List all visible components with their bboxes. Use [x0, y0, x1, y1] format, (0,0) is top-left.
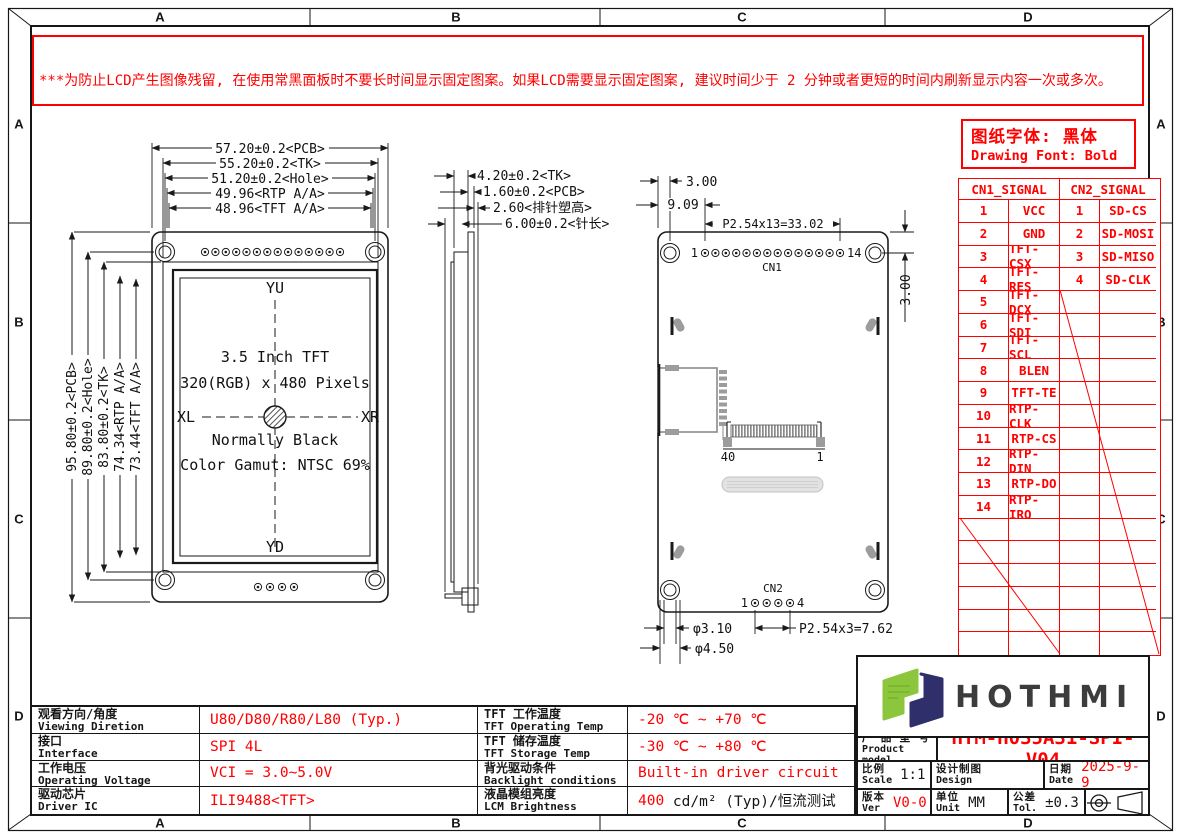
dim-cn1-pitch: P2.54x13=33.02: [722, 217, 823, 231]
table-cell: [1060, 405, 1100, 428]
spec-label-en: LCM Brightness: [478, 801, 627, 813]
table-cell: TFT-SDI: [1009, 314, 1060, 337]
zone-col-a-top: A: [155, 10, 164, 25]
table-cell: [1009, 564, 1060, 587]
scale-cell: 比例Scale 1:1: [858, 762, 932, 790]
table-cell: 3: [959, 246, 1009, 269]
side-connector: [462, 588, 478, 605]
product-model-label-en: Product model: [862, 744, 936, 763]
spec-label: TFT 储存温度TFT Storage Temp: [478, 734, 628, 761]
spec-label-cn: 液晶模组亮度: [478, 787, 627, 801]
spec-label-cn: TFT 工作温度: [478, 707, 627, 721]
title-block: HOTHMI 产 品 型 号Product model HTM-H035A31-…: [856, 655, 1150, 816]
table-cell: 2: [959, 223, 1009, 246]
table-cell: [1060, 632, 1100, 655]
table-cell: [1060, 291, 1100, 314]
table-cell: RTP-DO: [1009, 473, 1060, 496]
product-model-label: 产 品 型 号Product model: [858, 738, 938, 762]
tolerance-cell: 公差Tol. ±0.3: [1009, 790, 1086, 816]
back-pcb-outline: [658, 232, 888, 612]
back-view: 40 1: [636, 175, 914, 664]
spec-value: -20 ℃ ~ +70 ℃: [628, 707, 854, 734]
cn1-label: CN1: [762, 261, 782, 274]
dim-width-tk: 55.20±0.2<TK>: [219, 157, 321, 172]
dim-width-rtp: 49.96<RTP A/A>: [215, 187, 325, 202]
version-label-cn: 版本: [862, 792, 885, 803]
cn2-pin4-label: 4: [797, 596, 804, 610]
dim-height-hole: 89.80±0.2<Hole>: [81, 358, 96, 476]
table-cell: [1100, 587, 1156, 610]
brand-wordmark: HOTHMI: [955, 680, 1134, 715]
fpc-pin-1-label: 1: [816, 450, 823, 464]
back-mounting-holes: [661, 244, 885, 600]
zone-row-a-left: A: [14, 117, 23, 132]
spec-label-en: Viewing Diretion: [32, 721, 199, 733]
table-cell: RTP-IRQ: [1009, 496, 1060, 519]
dim-side-header-height: 2.60<排针塑高>: [493, 200, 592, 216]
table-cell: 2: [1060, 223, 1100, 246]
date-label-en: Date: [1049, 775, 1073, 786]
panel-mode-text: Normally Black: [212, 431, 338, 449]
drawing-font-note: 图纸字体: 黑体 Drawing Font: Bold: [961, 119, 1136, 169]
table-cell: [959, 541, 1009, 564]
spec-value: Built-in driver circuit: [628, 761, 854, 788]
table-cell: RTP-CS: [1009, 428, 1060, 451]
logo-box: HOTHMI: [858, 657, 1148, 738]
table-cell: 1: [1060, 200, 1100, 223]
zone-col-d-top: D: [1023, 10, 1032, 25]
front-cn2-pins: [254, 583, 297, 590]
spec-label-cn: 驱动芯片: [32, 787, 199, 801]
table-cell: 9: [959, 382, 1009, 405]
table-cell: [1100, 314, 1156, 337]
spec-label: 接口Interface: [32, 734, 200, 761]
spec-label: 液晶模组亮度LCM Brightness: [478, 787, 628, 814]
table-cell: 5: [959, 291, 1009, 314]
dim-top-to-pins: 3.00: [899, 274, 914, 305]
product-model-value: HTM-H035A31-SPI-V04: [938, 738, 1148, 762]
zone-row-a-right: A: [1156, 117, 1165, 132]
table-cell: [1100, 382, 1156, 405]
front-top-dims: 57.20±0.2<PCB> 55.20±0.2<TK> 51.20±0.2<H…: [152, 141, 388, 217]
cn1-pin14-label: 14: [847, 246, 861, 260]
table-cell: [1100, 519, 1156, 542]
table-cell: [1060, 473, 1100, 496]
dir-label-xl: XL: [177, 408, 195, 426]
corner-diagonal: [9, 814, 32, 830]
dim-hole-inner-dia: φ3.10: [693, 622, 732, 637]
side-dims: 4.20±0.2<TK> 1.60±0.2<PCB> 2.60<排针塑高> 6.…: [428, 169, 609, 232]
table-cell: 13: [959, 473, 1009, 496]
zone-col-b-bottom: B: [451, 816, 460, 831]
spec-value: -30 ℃ ~ +80 ℃: [628, 734, 854, 761]
dim-height-tk: 83.80±0.2<TK>: [97, 366, 112, 468]
panel-resolution-text: 320(RGB) x 480 Pixels: [180, 374, 370, 392]
date-label-cn: 日期: [1049, 764, 1073, 775]
spec-label-cn: 工作电压: [32, 761, 199, 775]
cn1-signal-header: CN1_SIGNAL: [959, 179, 1060, 200]
table-cell: 14: [959, 496, 1009, 519]
drawing-font-note-cn: 图纸字体: 黑体: [971, 123, 1134, 147]
product-model-label-cn: 产 品 型 号: [862, 738, 936, 744]
brightness-unit: cd/m² (Typ)/恒流测试: [664, 790, 836, 811]
table-cell: [1100, 405, 1156, 428]
table-cell: [1009, 587, 1060, 610]
side-tk-bar: [454, 252, 468, 592]
front-view: 57.20±0.2<PCB> 55.20±0.2<TK> 51.20±0.2<H…: [65, 141, 388, 602]
spec-label: 工作电压Operating Voltage: [32, 761, 200, 788]
dir-label-xr: XR: [361, 408, 380, 426]
spec-label-en: Backlight conditions: [478, 775, 627, 787]
design-label-en: Design: [936, 775, 982, 786]
table-cell: [1060, 610, 1100, 633]
table-cell: SD-MOSI: [1100, 223, 1156, 246]
spec-label-en: TFT Operating Temp: [478, 721, 627, 733]
drawing-font-note-en: Drawing Font: Bold: [971, 148, 1134, 164]
side-front-glass: [451, 262, 454, 582]
table-cell: [1100, 337, 1156, 360]
dim-height-tft: 73.44<TFT A/A>: [129, 362, 144, 472]
table-cell: [1009, 610, 1060, 633]
dim-side-pin-length: 6.00±0.2<针长>: [505, 217, 609, 232]
cn2-pin1-label: 1: [741, 596, 748, 610]
unit-value: MM: [968, 795, 985, 811]
table-cell: RTP-CLK: [1009, 405, 1060, 428]
table-cell: [1009, 541, 1060, 564]
sd-card-slot: [658, 364, 727, 440]
fpc-connector: 40 1: [721, 422, 825, 464]
table-cell: 7: [959, 337, 1009, 360]
zone-col-c-bottom: C: [737, 816, 746, 831]
table-cell: RTP-DIN: [1009, 450, 1060, 473]
table-cell: [959, 632, 1009, 655]
table-cell: 11: [959, 428, 1009, 451]
spec-label-en: Driver IC: [32, 801, 199, 813]
drawing-sheet: A B C D A B C D A B C D A B C D ***为防止LC…: [0, 0, 1181, 838]
spec-label: 观看方向/角度Viewing Diretion: [32, 707, 200, 734]
spec-label: TFT 工作温度TFT Operating Temp: [478, 707, 628, 734]
table-cell: [959, 519, 1009, 542]
version-cell: 版本Ver V0-0: [858, 790, 932, 816]
design-label-cn: 设计制图: [936, 764, 982, 775]
zone-row-d-right: D: [1156, 709, 1165, 724]
spec-label: 背光驱动条件Backlight conditions: [478, 761, 628, 788]
cn2-label: CN2: [763, 582, 783, 595]
table-cell: 3: [1060, 246, 1100, 269]
table-cell: [1060, 428, 1100, 451]
corner-diagonal: [1149, 814, 1172, 830]
dim-side-tk: 4.20±0.2<TK>: [477, 169, 571, 184]
table-cell: [1100, 541, 1156, 564]
unit-label-cn: 单位: [936, 792, 960, 803]
table-cell: [1060, 564, 1100, 587]
date-value: 2025-9-9: [1081, 762, 1148, 790]
dim-height-rtp: 74.34<RTP A/A>: [113, 362, 128, 472]
table-cell: 10: [959, 405, 1009, 428]
warning-line-1: ***为防止LCD产生图像残留, 在使用常黑面板时不要长时间显示固定图案。如果L…: [39, 73, 1142, 90]
table-cell: [1100, 291, 1156, 314]
table-cell: TFT-CSX: [1009, 246, 1060, 269]
table-cell: [1060, 496, 1100, 519]
dim-cn2-pitch: P2.54x3=7.62: [799, 622, 893, 637]
front-cn1-pins: [201, 248, 343, 255]
zone-row-c-left: C: [14, 512, 23, 527]
spec-label-en: Operating Voltage: [32, 775, 199, 787]
dim-width-tft: 48.96<TFT A/A>: [215, 202, 325, 217]
spec-label: 驱动芯片Driver IC: [32, 787, 200, 814]
signal-table: CN1_SIGNAL CN2_SIGNAL 1VCC1SD-CS 2GND2SD…: [958, 178, 1161, 656]
version-label-en: Ver: [862, 803, 885, 814]
projection-symbol-cell: [1086, 790, 1148, 816]
table-cell: [1100, 428, 1156, 451]
fpc-pin-40-label: 40: [721, 450, 735, 464]
mechanical-views: 57.20±0.2<PCB> 55.20±0.2<TK> 51.20±0.2<H…: [30, 110, 960, 702]
front-left-dims: 95.80±0.2<PCB> 89.80±0.2<Hole> 83.80±0.2…: [65, 232, 144, 602]
front-center-mark: [264, 406, 286, 428]
product-model-cell: HTM-H035A31-SPI-V04: [938, 738, 1148, 762]
cn1-pin1-label: 1: [691, 246, 698, 260]
spec-value: ILI9488<TFT>: [200, 787, 478, 814]
table-cell: [959, 587, 1009, 610]
table-cell: [1060, 359, 1100, 382]
spec-table: 观看方向/角度Viewing Diretion U80/D80/R80/L80 …: [30, 705, 856, 816]
side-extension-lines: [445, 170, 478, 592]
back-cn2-pins: [751, 599, 793, 606]
spec-value: VCI = 3.0~5.0V: [200, 761, 478, 788]
tolerance-value: ±0.3: [1045, 795, 1079, 811]
corner-diagonal: [9, 9, 32, 27]
dim-hole-outer-dia: φ4.50: [695, 642, 734, 657]
table-cell: [1100, 359, 1156, 382]
dim-edge-to-pin1: 9.09: [667, 198, 698, 213]
brightness-value: 400: [638, 793, 664, 809]
table-cell: 4: [959, 268, 1009, 291]
corner-diagonal: [1149, 9, 1172, 27]
table-cell: TFT-DCX: [1009, 291, 1060, 314]
zone-col-c-top: C: [737, 10, 746, 25]
zone-row-b-left: B: [14, 315, 23, 330]
table-cell: 1: [959, 200, 1009, 223]
panel-gamut-text: Color Gamut: NTSC 69%: [180, 456, 370, 474]
spec-label-en: TFT Storage Temp: [478, 748, 627, 760]
table-cell: [1009, 632, 1060, 655]
side-pin: [445, 594, 462, 598]
zone-row-d-left: D: [14, 709, 23, 724]
tolerance-label-cn: 公差: [1013, 792, 1037, 803]
spec-value: SPI 4L: [200, 734, 478, 761]
date-cell: 日期Date 2025-9-9: [1045, 762, 1148, 790]
table-cell: GND: [1009, 223, 1060, 246]
cn2-signal-header: CN2_SIGNAL: [1060, 179, 1156, 200]
panel-size-text: 3.5 Inch TFT: [221, 348, 329, 366]
unit-cell: 单位Unit MM: [932, 790, 1009, 816]
table-cell: [1100, 450, 1156, 473]
side-view: 4.20±0.2<TK> 1.60±0.2<PCB> 2.60<排针塑高> 6.…: [428, 169, 609, 612]
table-cell: [1100, 632, 1156, 655]
scale-label-en: Scale: [862, 775, 892, 786]
table-cell: SD-MISO: [1100, 246, 1156, 269]
spec-label-cn: 接口: [32, 734, 199, 748]
dim-width-hole: 51.20±0.2<Hole>: [211, 172, 329, 187]
table-cell: TFT-TE: [1009, 382, 1060, 405]
third-angle-projection-icon: [1086, 791, 1146, 815]
table-cell: 4: [1060, 268, 1100, 291]
back-cn1-pins: [701, 249, 843, 256]
table-cell: [1060, 314, 1100, 337]
table-cell: [1100, 496, 1156, 519]
dim-side-pcb: 1.60±0.2<PCB>: [483, 185, 585, 200]
retention-warning-box: ***为防止LCD产生图像残留, 在使用常黑面板时不要长时间显示固定图案。如果L…: [32, 35, 1144, 106]
design-cell: 设计制图Design: [932, 762, 1045, 790]
side-pcb-strip: [468, 232, 474, 612]
zone-col-a-bottom: A: [155, 816, 164, 831]
scale-label-cn: 比例: [862, 764, 892, 775]
spec-label-cn: TFT 储存温度: [478, 734, 627, 748]
spec-value: U80/D80/R80/L80 (Typ.): [200, 707, 478, 734]
table-cell: [1100, 610, 1156, 633]
spec-label-cn: 背光驱动条件: [478, 761, 627, 775]
spec-label-en: Interface: [32, 748, 199, 760]
table-cell: [1060, 337, 1100, 360]
dim-edge-to-hole: 3.00: [686, 175, 717, 190]
spec-value: 400 cd/m² (Typ)/恒流测试: [628, 787, 854, 814]
tolerance-label-en: Tol.: [1013, 803, 1037, 814]
unit-label-en: Unit: [936, 803, 960, 814]
dir-label-yu: YU: [266, 279, 284, 297]
table-cell: [1100, 473, 1156, 496]
table-cell: [1060, 450, 1100, 473]
zone-col-d-bottom: D: [1023, 816, 1032, 831]
table-cell: [1100, 564, 1156, 587]
table-cell: SD-CS: [1100, 200, 1156, 223]
table-cell: [1060, 519, 1100, 542]
table-cell: [1009, 519, 1060, 542]
table-cell: TFT-SCL: [1009, 337, 1060, 360]
table-cell: [959, 564, 1009, 587]
back-corner-brackets: [672, 317, 878, 560]
table-cell: 12: [959, 450, 1009, 473]
table-cell: TFT-RES: [1009, 268, 1060, 291]
version-value: V0-0: [893, 795, 927, 811]
dim-width-pcb: 57.20±0.2<PCB>: [215, 142, 325, 157]
table-cell: BLEN: [1009, 359, 1060, 382]
table-cell: VCC: [1009, 200, 1060, 223]
front-crosshair: [202, 300, 358, 548]
table-cell: [1060, 541, 1100, 564]
dim-height-pcb: 95.80±0.2<PCB>: [65, 362, 80, 472]
table-cell: [959, 610, 1009, 633]
table-cell: 6: [959, 314, 1009, 337]
table-cell: 8: [959, 359, 1009, 382]
spec-label-cn: 观看方向/角度: [32, 707, 199, 721]
dir-label-yd: YD: [266, 538, 284, 556]
scale-value: 1:1: [900, 767, 925, 783]
table-cell: [1060, 587, 1100, 610]
zone-col-b-top: B: [451, 10, 460, 25]
table-cell: SD-CLK: [1100, 268, 1156, 291]
table-cell: [1060, 382, 1100, 405]
hothmi-logo-icon: [878, 666, 948, 728]
